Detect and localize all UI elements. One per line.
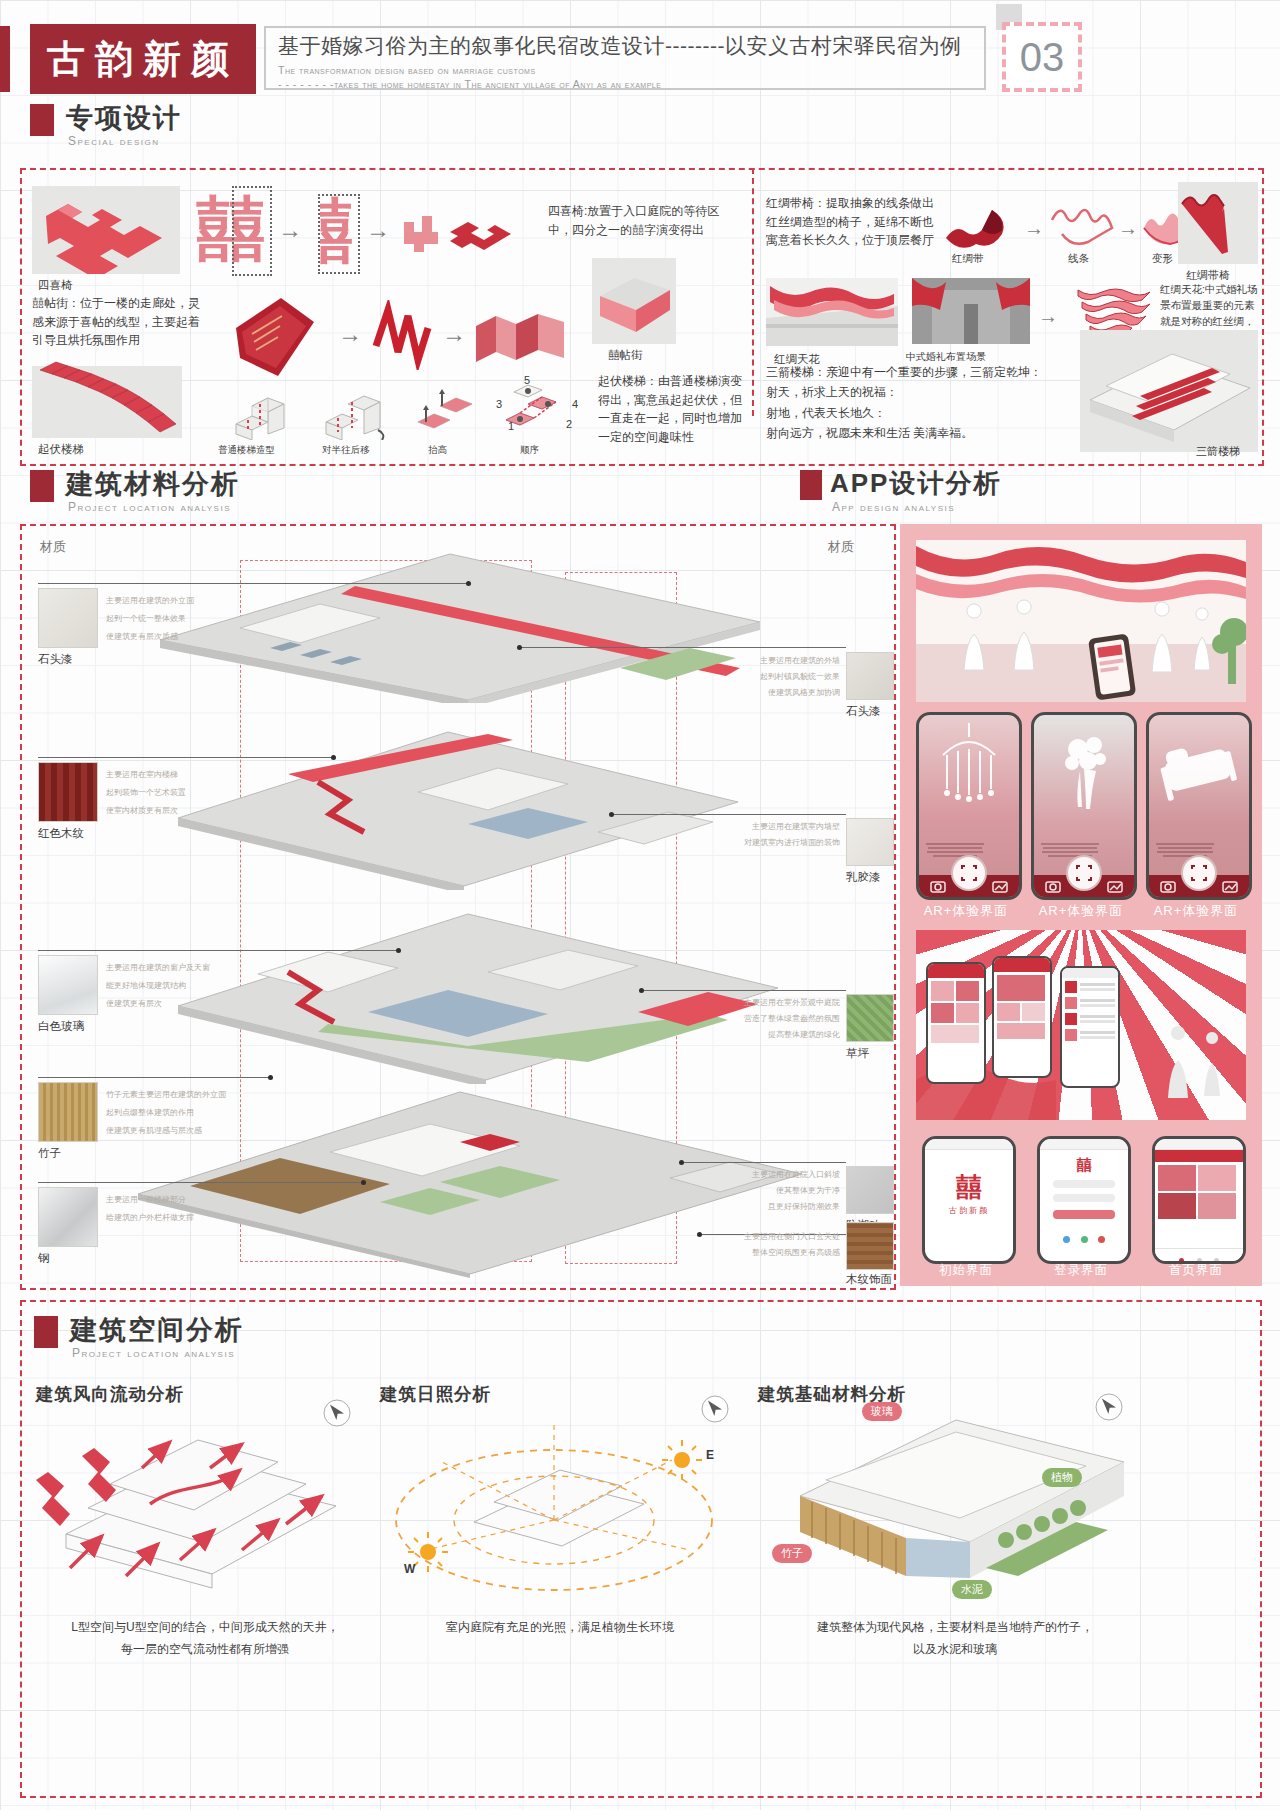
ar-screen-label-2: AR+体验界面	[1031, 902, 1131, 920]
material-note: 主要运用在建筑的外立面	[106, 592, 286, 609]
three-arrow-stair-image	[1080, 330, 1258, 452]
login-option-red-icon[interactable]	[1098, 1236, 1105, 1243]
three-arrow-desc-line4: 射向远方，祝愿未来和生活 美满幸福。	[766, 423, 1076, 443]
banner-phone-list	[1062, 978, 1118, 1044]
material-note: 给建筑的户外栏杆做支撑	[106, 1209, 286, 1226]
swatch-stone-paint-2	[846, 652, 894, 700]
material-note: 主要运用在建筑的外墙	[700, 652, 840, 669]
focus-shutter-icon	[1068, 857, 1100, 889]
swatch-wood-veneer	[846, 1222, 894, 1270]
silk-ceiling-image	[766, 278, 898, 346]
swatch-steel	[38, 1187, 98, 1247]
three-arrow-desc-line1: 三箭楼梯：亲迎中有一个重要的步骤，三箭定乾坤：	[766, 362, 1076, 382]
swatch-stone-paint	[38, 588, 98, 648]
section3-subtitle: Project location analysis	[72, 1346, 235, 1360]
sunlight-diagram	[382, 1402, 727, 1602]
sixi-chair-shape-icon	[32, 186, 180, 274]
arrow-right-icon: →	[366, 218, 390, 242]
leader-line	[612, 814, 846, 815]
home-phone	[1152, 1136, 1246, 1264]
camera-icon	[1161, 882, 1175, 892]
camera-icon	[1046, 882, 1060, 892]
username-field[interactable]	[1053, 1180, 1115, 1188]
camera-icon	[931, 882, 945, 892]
banner-phone-2	[992, 956, 1052, 1078]
leader-dot	[361, 1180, 366, 1185]
material-label: 乳胶漆	[846, 870, 881, 885]
section3-bullet	[34, 1316, 58, 1348]
sixi-evolved-shape	[398, 204, 514, 268]
password-field[interactable]	[1053, 1194, 1115, 1202]
bouquet-icon	[1034, 715, 1134, 835]
wave-stair-label: 起伏楼梯	[38, 442, 84, 457]
title-box: 基于婚嫁习俗为主的叙事化民宿改造设计--------以安义古村宋驿民宿为例 Th…	[264, 26, 986, 90]
wind-caption: L型空间与U型空间的结合，中间形成天然的天井， 每一层的空气流动性都有所增强	[55, 1616, 355, 1660]
ar-hero-scene-icon	[916, 540, 1246, 702]
material-label: 红色木纹	[38, 826, 84, 841]
material-note: 起到点缀整体建筑的作用	[106, 1104, 296, 1121]
stair-step-label-3: 抬高	[428, 444, 447, 457]
stair-lift-icon	[414, 388, 478, 440]
xitie-street-render-icon	[592, 258, 676, 344]
leader-dot	[466, 581, 471, 586]
base-caption-line2: 以及水泥和玻璃	[790, 1638, 1120, 1660]
leader-line	[38, 950, 398, 951]
leader-line	[38, 1077, 270, 1078]
sun-west-label: W	[404, 1562, 415, 1576]
xitie-street-label: 囍帖街	[608, 348, 643, 363]
page-number-box: 03	[1002, 22, 1082, 92]
ar-phone-2	[1031, 712, 1137, 900]
three-arrow-desc: 三箭楼梯：亲迎中有一个重要的步骤，三箭定乾坤： 射天，祈求上天的祝福： 射地，代…	[766, 362, 1076, 444]
material-header-left: 材质	[40, 538, 66, 556]
screen-label-splash: 初始界面	[922, 1262, 1010, 1279]
material-note: 使建筑更有层次	[106, 995, 286, 1012]
xi-glyph-quarter-box	[232, 186, 272, 276]
material-note: 提高整体建筑的绿化	[700, 1026, 840, 1043]
material-note: 对建筑室内进行墙面的装饰	[700, 834, 840, 851]
material-note: 主要运用在侧门入口玄关处	[700, 1228, 840, 1245]
arrow-right-icon: →	[1038, 306, 1058, 326]
leader-dot	[268, 1075, 273, 1080]
login-option-green-icon[interactable]	[1081, 1236, 1088, 1243]
stair-number-2: 2	[566, 418, 572, 430]
material-note: 起到一个统一整体效果	[106, 610, 286, 627]
swatch-lawn	[846, 994, 894, 1042]
wave-stair-desc: 起伏楼梯：由普通楼梯演变得出，寓意虽起起伏伏，但一直走在一起，同时也增加一定的空…	[598, 372, 748, 446]
focus-shutter-icon	[1183, 857, 1215, 889]
material-note: 起到村镇风貌统一效果	[700, 668, 840, 685]
edge-strip	[0, 26, 10, 92]
ribbon-line-icon	[1050, 198, 1116, 250]
stair-cube-icon	[322, 390, 390, 440]
section1-bullet	[30, 104, 54, 136]
xitie-desc: 囍帖街：位于一楼的走廊处，灵感来源于喜帖的线型，主要起着引导且烘托氛围作用	[32, 294, 204, 350]
ar-screen-label-3: AR+体验界面	[1146, 902, 1246, 920]
tag-bamboo: 竹子	[772, 1544, 812, 1563]
tag-plant: 植物	[1042, 1468, 1082, 1487]
material-note: 主要运用在室内楼梯	[106, 766, 286, 783]
gallery-icon	[1108, 882, 1122, 892]
leader-line	[38, 757, 333, 758]
login-options	[1040, 1229, 1128, 1247]
arrow-right-icon: →	[278, 218, 302, 242]
xi-glyph-partial: 囍	[318, 196, 354, 266]
material-note: 能更好地体现建筑结构	[106, 977, 286, 994]
tag-glass: 玻璃	[862, 1402, 902, 1421]
section2-bullet	[30, 470, 54, 502]
sixi-desc: 四喜椅:放置于入口庭院的等待区中，四分之一的囍字演变得出	[548, 202, 724, 239]
zigzag-line-icon	[372, 300, 434, 370]
leader-dot	[609, 812, 614, 817]
material-label: 草坪	[846, 1046, 869, 1061]
home-feed-grid[interactable]	[1155, 1162, 1243, 1222]
stair-number-4: 4	[572, 398, 578, 410]
three-arrow-stair-render-icon	[1080, 330, 1258, 452]
app-section-title: APP设计分析	[830, 466, 1001, 501]
wedding-scene-photo	[912, 278, 1030, 344]
swatch-moistureproof-brick	[846, 1166, 894, 1214]
gallery-icon	[1223, 882, 1237, 892]
material-note: 整体空间氛围更有高级感	[700, 1244, 840, 1261]
swatch-white-glass	[38, 955, 98, 1015]
material-label: 石头漆	[38, 652, 73, 667]
stair-step-1	[228, 390, 296, 444]
stair-step-label-1: 普通楼梯造型	[218, 444, 275, 457]
section3-title: 建筑空间分析	[70, 1312, 244, 1348]
leader-line	[38, 1182, 363, 1183]
home-nav-bar[interactable]	[1155, 1248, 1243, 1261]
arrow-right-icon: →	[1118, 218, 1138, 238]
material-note: 起到装饰一个艺术装置	[106, 784, 286, 801]
ribbon-chair-desc: 红绸带椅：提取抽象的线条做出红丝绸造型的椅子，延绵不断也寓意着长长久久，位于顶层…	[766, 194, 938, 250]
ar-caption-lines	[1034, 843, 1106, 857]
folded-wall-icon	[474, 308, 568, 366]
page-number: 03	[1006, 26, 1078, 88]
zigzag-line-image	[372, 300, 434, 374]
material-label: 钢	[38, 1251, 50, 1266]
three-arrow-desc-line2: 射天，祈求上天的祝福：	[766, 382, 1076, 402]
ribbon-step-label-3: 变形	[1152, 252, 1173, 266]
gallery-icon	[993, 882, 1007, 892]
screen-label-home: 首页界面	[1152, 1262, 1240, 1279]
material-label: 木纹饰面	[846, 1272, 892, 1287]
stair-step-2	[322, 390, 390, 444]
leader-line	[642, 990, 846, 991]
sun-caption: 室内庭院有充足的光照，满足植物生长环境	[400, 1616, 720, 1638]
section1-subtitle: Special design	[68, 134, 159, 148]
material-label: 白色玻璃	[38, 1019, 84, 1034]
splash-phone: 囍 古韵新颜	[922, 1136, 1016, 1264]
ribbon-chair-render-icon	[1178, 182, 1258, 264]
stair-number-3: 3	[496, 398, 502, 410]
section2-subtitle: Project location analysis	[68, 500, 231, 514]
invitation-card-image	[226, 288, 326, 390]
ribbon-image	[944, 202, 1020, 254]
wind-caption-line2: 每一层的空气流动性都有所增强	[55, 1638, 355, 1660]
wave-stair-image	[34, 344, 186, 442]
login-button[interactable]	[1053, 1210, 1115, 1219]
leader-dot	[639, 988, 644, 993]
section1-title: 专项设计	[66, 100, 182, 136]
material-note: 营造了整体绿意盎然的氛围	[700, 1010, 840, 1027]
swatch-red-wood	[38, 762, 98, 822]
material-note: 使建筑更有层次质感	[106, 628, 286, 645]
xi-glyph-partial-box: 囍	[318, 194, 360, 274]
arrow-right-icon: →	[338, 322, 362, 346]
ar-caption-lines	[919, 843, 991, 857]
app-section-bullet	[800, 470, 822, 500]
material-note: 使室内材质更有层次	[106, 802, 286, 819]
stair-step-3	[414, 388, 478, 444]
ribbon-line-image	[1050, 198, 1116, 254]
login-logo-glyph: 囍	[1040, 1158, 1128, 1173]
sun-east-label: E	[706, 1448, 714, 1462]
material-header-right: 材质	[828, 538, 854, 556]
section2-title: 建筑材料分析	[66, 466, 240, 502]
app-section-subtitle: App design analysis	[832, 500, 955, 514]
leader-dot	[517, 645, 522, 650]
material-note: 主要运用在庭院入口斜坡	[700, 1166, 840, 1183]
material-label: 石头漆	[846, 704, 881, 719]
silk-ceiling-render-icon	[766, 278, 898, 346]
material-note: 主要运用在建筑的窗户及天窗	[106, 959, 286, 976]
three-arrow-desc-line3: 射地，代表天长地久：	[766, 403, 1076, 423]
material-note: 竹子元素主要运用在建筑的外立面	[106, 1086, 296, 1103]
ar-phone-3	[1146, 712, 1252, 900]
xitie-street-image	[592, 258, 676, 344]
material-note: 主要运用一些楼梯部分	[106, 1191, 286, 1208]
swatch-latex-paint	[846, 818, 894, 866]
leader-line	[682, 1162, 846, 1163]
three-arrow-stair-label: 三箭楼梯	[1196, 444, 1240, 459]
banner-phone-3	[1060, 966, 1120, 1088]
ar-screen-label-1: AR+体验界面	[916, 902, 1016, 920]
app-logo-name: 古韵新颜	[925, 1205, 1013, 1216]
tag-cement: 水泥	[952, 1580, 992, 1599]
material-note: 使建筑更有肌理感与层次感	[106, 1122, 296, 1139]
folded-wall-image	[474, 308, 568, 370]
wind-flow-diagram	[30, 1408, 360, 1602]
invitation-card-icon	[226, 288, 326, 386]
screen-label-login: 登录界面	[1037, 1262, 1125, 1279]
red-ribbon-icon	[944, 202, 1020, 250]
sun-east-icon	[662, 1440, 702, 1480]
page-subtitle-en1: The transformation design based on marri…	[278, 64, 984, 76]
arrow-right-icon: →	[442, 322, 466, 346]
base-caption: 建筑整体为现代风格，主要材料是当地特产的竹子， 以及水泥和玻璃	[790, 1616, 1120, 1660]
base-material-diagram	[756, 1400, 1146, 1604]
app-ar-hero-image	[916, 540, 1246, 702]
login-phone: 囍	[1037, 1136, 1131, 1264]
sixi-chair-image	[32, 186, 180, 274]
base-caption-line1: 建筑整体为现代风格，主要材料是当地特产的竹子，	[790, 1616, 1120, 1638]
logo-text: 古韵新颜	[30, 24, 256, 94]
sun-caption-line1: 室内庭院有充足的光照，满足植物生长环境	[400, 1616, 720, 1638]
leader-line	[520, 647, 846, 648]
bed-icon	[1149, 715, 1249, 835]
poster: 古韵新颜 基于婚嫁习俗为主的叙事化民宿改造设计--------以安义古村宋驿民宿…	[0, 0, 1280, 1810]
logo-box: 古韵新颜	[30, 24, 256, 94]
stair-number-5: 5	[524, 374, 530, 386]
page-subtitle-en2: - - - - - - - -takes the home homestay i…	[278, 78, 984, 90]
ar-phone-1	[916, 712, 1022, 900]
wedding-scene-icon	[912, 278, 1030, 344]
stair-step-label-2: 对半往后移	[322, 444, 370, 457]
material-note: 使其整体更为干净	[700, 1182, 840, 1199]
stair-cube-icon	[228, 390, 296, 440]
focus-shutter-icon	[953, 857, 985, 889]
app-logo-glyph: 囍	[925, 1174, 1013, 1200]
wave-stair-icon	[34, 344, 186, 438]
material-note: 主要运用在室外景观中庭院	[700, 994, 840, 1011]
sixi-evolved-chair-icon	[398, 204, 514, 264]
banner-phone-1	[926, 962, 986, 1084]
material-note: 使建筑风格更加协调	[700, 684, 840, 701]
ar-caption-lines	[1149, 843, 1221, 857]
wind-caption-line1: L型空间与U型空间的结合，中间形成天然的天井，	[55, 1616, 355, 1638]
leader-line	[38, 583, 468, 584]
arrow-right-icon: →	[1024, 218, 1044, 238]
page-title: 基于婚嫁习俗为主的叙事化民宿改造设计--------以安义古村宋驿民宿为例	[278, 32, 984, 60]
material-note: 且更好保持防潮效果	[700, 1198, 840, 1215]
leader-dot	[396, 948, 401, 953]
material-note: 主要运用在建筑室内墙壁	[700, 818, 840, 835]
ribbon-chair-image	[1178, 182, 1258, 264]
leader-dot	[331, 755, 336, 760]
ribbon-step-label-1: 红绸带	[952, 252, 984, 266]
special-panel-divider	[752, 168, 754, 416]
swatch-bamboo	[38, 1082, 98, 1142]
stair-step-4	[498, 380, 572, 444]
stair-number-1: 1	[508, 420, 514, 432]
sixi-chair-label: 四喜椅	[38, 278, 73, 293]
stair-step-label-4: 顺序	[520, 444, 539, 457]
material-label: 竹子	[38, 1146, 61, 1161]
ribbon-step-label-2: 线条	[1068, 252, 1089, 266]
leader-dot	[679, 1160, 684, 1165]
ribbon-chair-label: 红绸带椅	[1186, 268, 1230, 283]
wind-heading: 建筑风向流动分析	[36, 1382, 184, 1406]
login-option-blue-icon[interactable]	[1063, 1236, 1070, 1243]
chandelier-icon	[919, 715, 1019, 835]
